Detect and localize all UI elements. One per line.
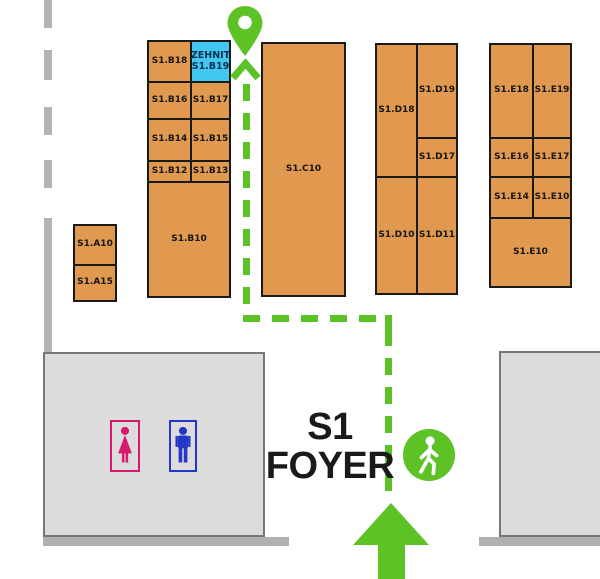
booth-s1-a10[interactable]: S1.A10	[73, 224, 117, 266]
wall-baseline-right	[479, 537, 600, 546]
booth-s1-b10[interactable]: S1.B10	[147, 181, 231, 298]
booth-s1-e18[interactable]: S1.E18	[489, 43, 534, 139]
male-restroom-icon	[169, 420, 197, 472]
location-pin-icon	[222, 5, 268, 57]
foyer-label-line2: FOYER	[252, 447, 408, 486]
booth-s1-c10[interactable]: S1.C10	[261, 42, 346, 297]
booth-s1-b15[interactable]: S1.B15	[190, 118, 231, 162]
booth-s1-b13[interactable]: S1.B13	[190, 160, 231, 183]
booth-s1-b16[interactable]: S1.B16	[147, 81, 192, 120]
booth-s1-b14[interactable]: S1.B14	[147, 118, 192, 162]
booth-s1-d10[interactable]: S1.D10	[375, 176, 418, 295]
wall-segment	[44, 0, 52, 28]
booth-s1-d19[interactable]: S1.D19	[416, 43, 458, 139]
booth-s1-e17[interactable]: S1.E17	[532, 137, 572, 178]
entrance-up-arrow-icon	[350, 500, 432, 579]
foyer-label-line1: S1	[252, 408, 408, 447]
wall-segment	[44, 107, 52, 135]
wall-baseline-left	[43, 537, 289, 546]
booth-s1-d18[interactable]: S1.D18	[375, 43, 418, 178]
wall-segment	[44, 218, 52, 352]
pedestrian-icon	[403, 429, 455, 481]
booth-s1-b12[interactable]: S1.B12	[147, 160, 192, 183]
female-restroom-icon	[110, 420, 140, 472]
booth-s1-d17[interactable]: S1.D17	[416, 137, 458, 178]
booth-s1-e16[interactable]: S1.E16	[489, 137, 534, 178]
wall-segment	[44, 50, 52, 80]
right-building	[499, 351, 600, 537]
booth-s1-d11[interactable]: S1.D11	[416, 176, 458, 295]
foyer-label: S1 FOYER	[252, 408, 408, 486]
booth-number: S1.B19	[191, 62, 230, 72]
booth-s1-b18[interactable]: S1.B18	[147, 40, 192, 83]
booth-s1-b17[interactable]: S1.B17	[190, 81, 231, 120]
booth-s1-e10-small[interactable]: S1.E10	[532, 176, 572, 219]
restroom-building	[43, 352, 265, 537]
booth-s1-a15[interactable]: S1.A15	[73, 264, 117, 302]
route-dashed-line-horizontal	[243, 315, 392, 322]
chevron-up-icon	[229, 59, 262, 81]
floor-plan: S1.B18 ZEHNIT S1.B19 S1.B16 S1.B17 S1.B1…	[0, 0, 600, 579]
booth-s1-e10-large[interactable]: S1.E10	[489, 217, 572, 288]
wall-segment	[44, 160, 52, 188]
route-corner	[385, 315, 392, 329]
booth-s1-e14[interactable]: S1.E14	[489, 176, 534, 219]
route-dashed-line-vertical	[243, 84, 250, 317]
booth-s1-e19[interactable]: S1.E19	[532, 43, 572, 139]
